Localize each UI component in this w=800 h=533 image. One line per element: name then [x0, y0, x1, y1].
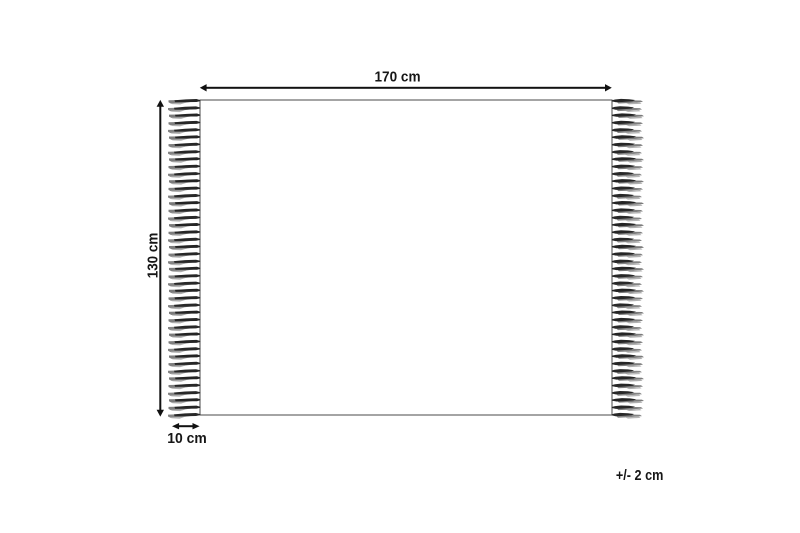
- svg-text:130 cm: 130 cm: [145, 233, 162, 279]
- svg-text:+/- 2 cm: +/- 2 cm: [616, 467, 664, 484]
- svg-text:10 cm: 10 cm: [167, 430, 207, 447]
- svg-text:170 cm: 170 cm: [375, 68, 421, 85]
